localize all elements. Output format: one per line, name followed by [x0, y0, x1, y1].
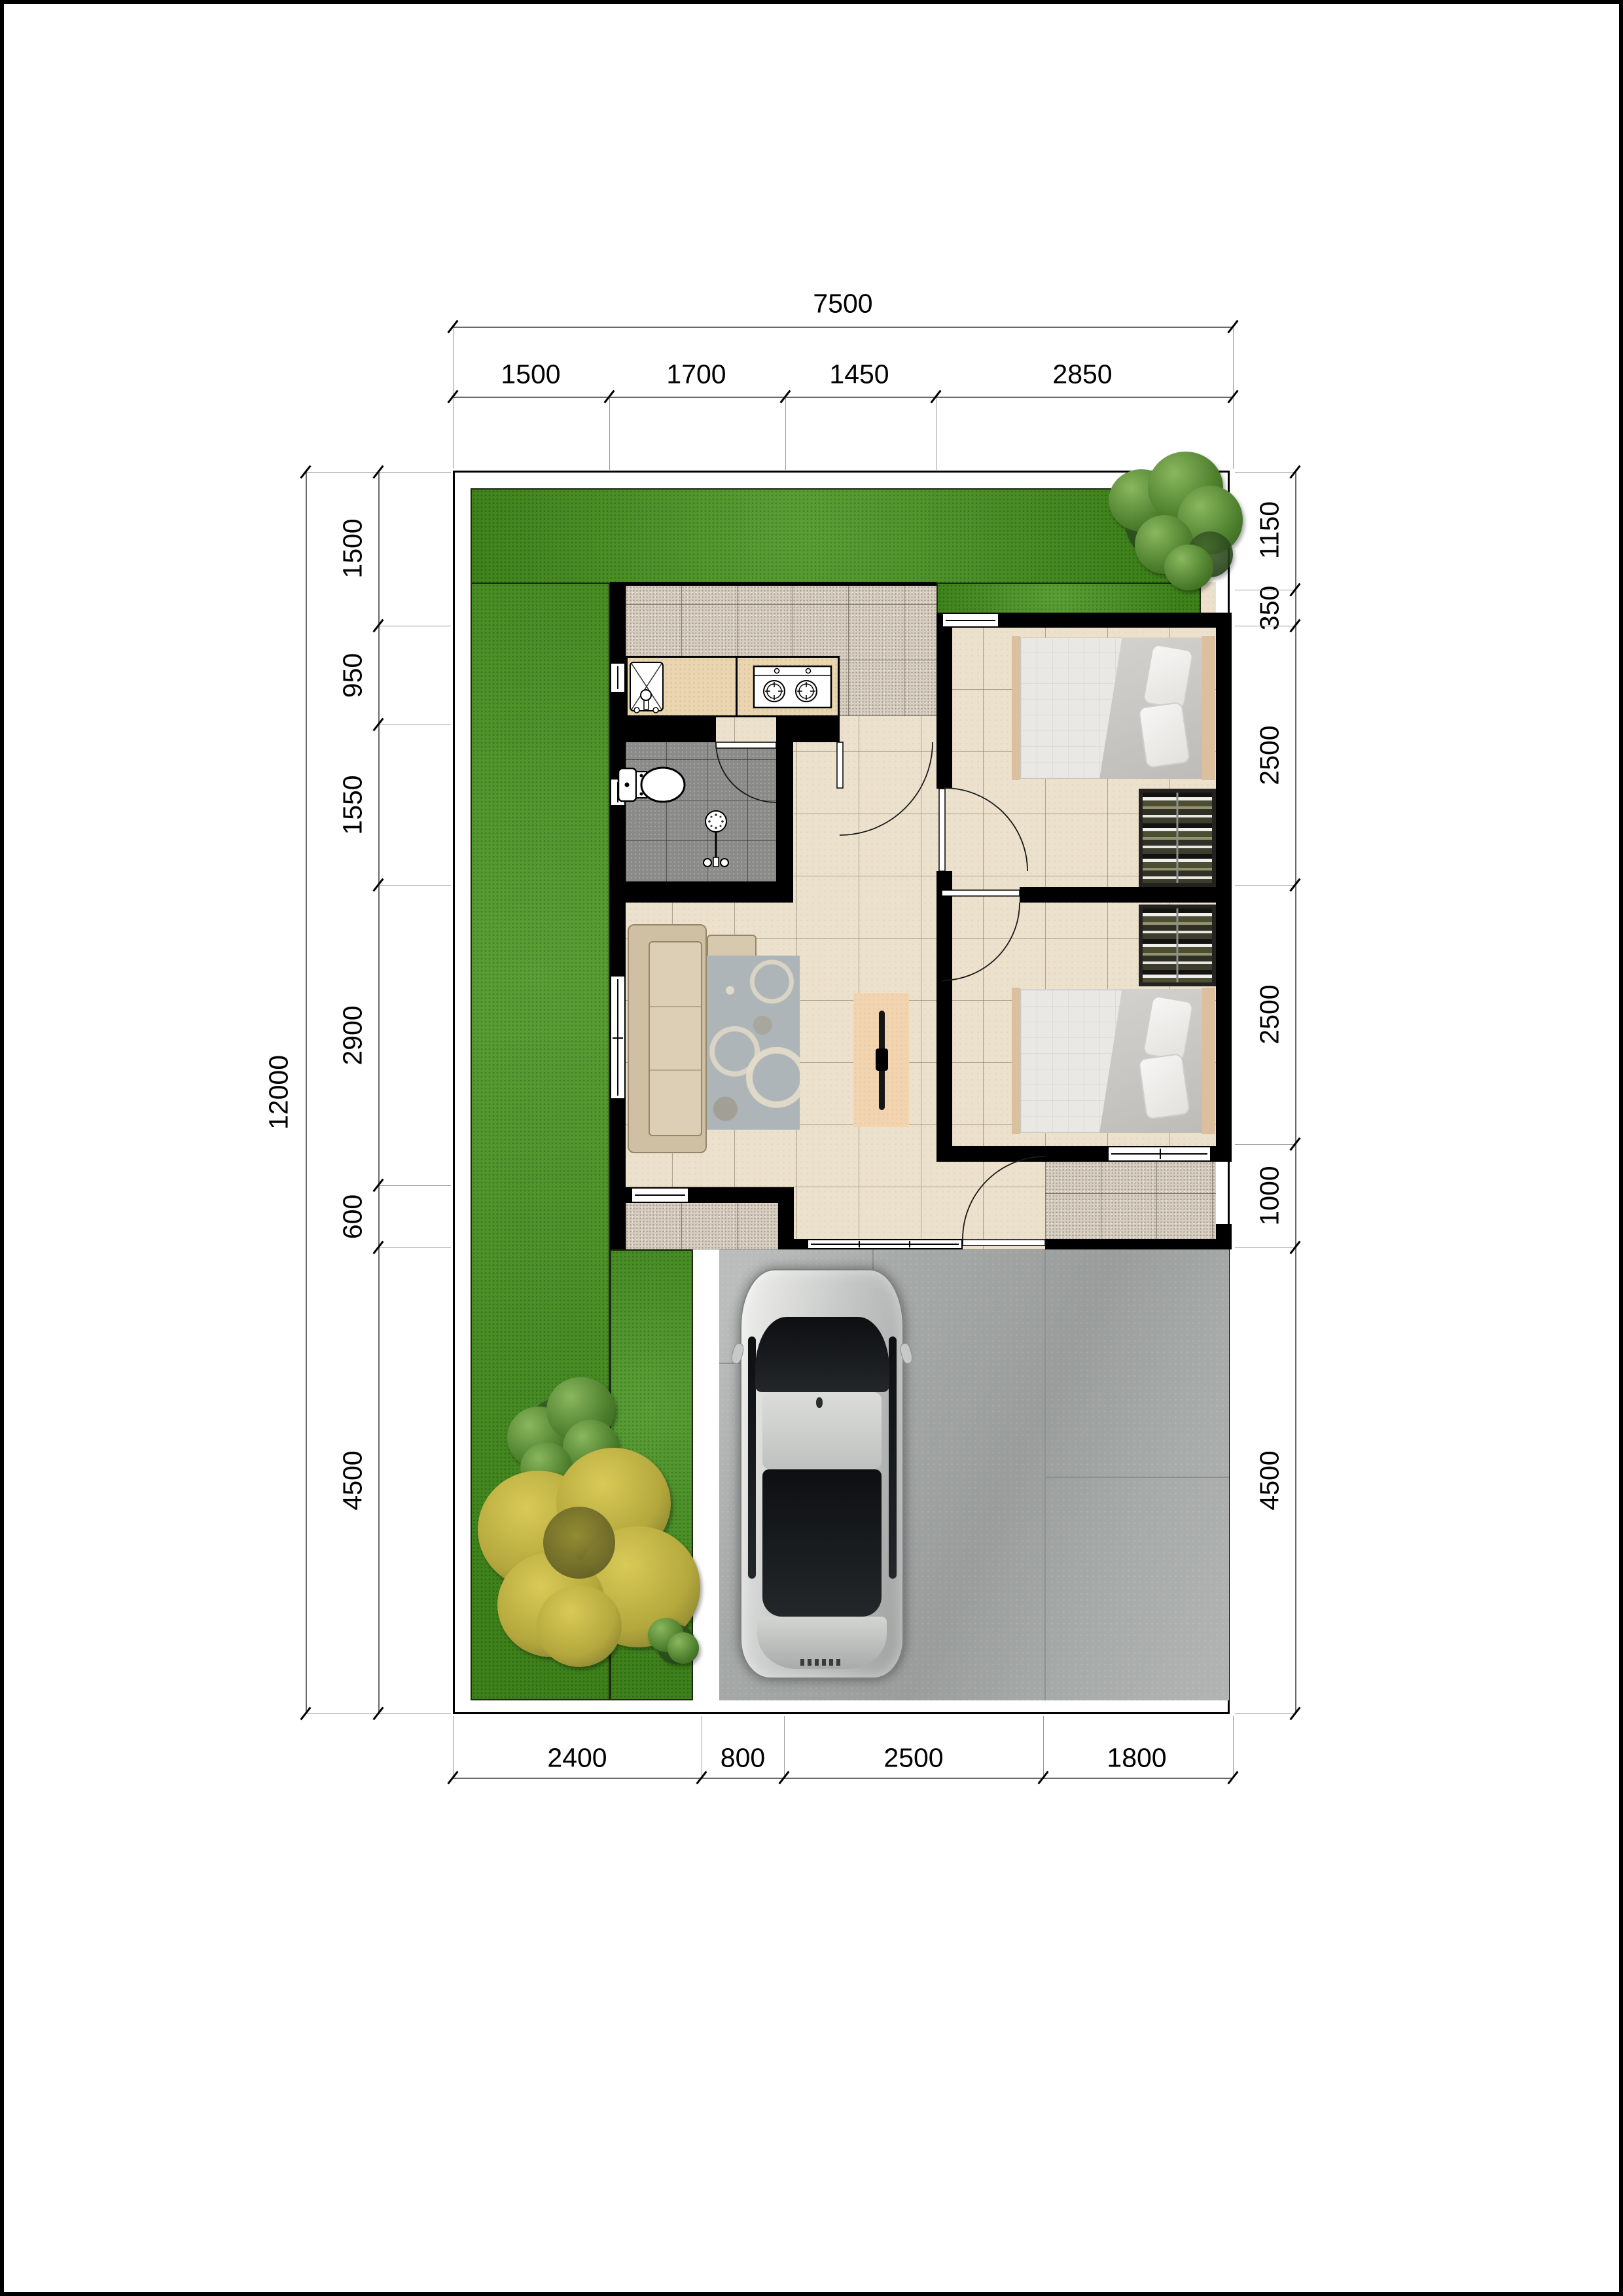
dim-right-seg-6: 4500 — [1255, 1450, 1285, 1510]
dim-ext-top — [609, 397, 610, 470]
dim-line-left-segments — [378, 472, 380, 1713]
dim-ext-left-outer — [306, 472, 378, 473]
bedroom2-door-arc — [942, 903, 1020, 980]
dim-ext-right — [1235, 885, 1295, 886]
dim-left-seg-3: 1550 — [338, 775, 368, 834]
dim-bottom-seg-4: 1800 — [1107, 1743, 1166, 1774]
kitchen-door-arc — [840, 742, 933, 835]
kitchen-door-leaf — [837, 742, 843, 788]
dim-ext-right — [1235, 1247, 1295, 1248]
car — [738, 1266, 906, 1681]
bedroom2-door-leaf — [942, 890, 1020, 896]
dim-left-seg-4: 2900 — [338, 1005, 368, 1065]
car-rear-grille — [800, 1659, 844, 1666]
car-badge — [816, 1397, 823, 1408]
dim-line-top-total — [453, 327, 1233, 328]
dim-ext-left — [378, 725, 451, 725]
floor-plan-sheet: 7500 1500 1700 1450 2850 2400 800 2500 1… — [0, 0, 1623, 2296]
dim-bottom-seg-2: 800 — [721, 1743, 765, 1774]
dim-right-seg-1: 1150 — [1255, 501, 1285, 559]
entrance-door-leaf — [963, 1240, 1045, 1246]
dim-bottom-seg-3: 2500 — [883, 1743, 943, 1774]
car-rear-window — [762, 1469, 882, 1617]
dim-ext-bottom — [453, 1716, 454, 1778]
toilet-icon — [618, 768, 685, 802]
dim-ext-right — [1235, 1144, 1295, 1145]
plot-boundary — [453, 471, 1230, 1714]
dim-top-total: 7500 — [813, 289, 872, 319]
dim-ext-left — [378, 626, 451, 626]
dim-ext-top — [936, 397, 936, 470]
tree-backyard — [1105, 446, 1249, 590]
dim-top-seg-4: 2850 — [1052, 359, 1112, 390]
dim-ext-bottom — [784, 1716, 785, 1778]
dim-left-total: 12000 — [264, 1055, 294, 1130]
dim-top-seg-3: 1450 — [829, 359, 889, 390]
dim-ext-left-outer — [306, 1713, 378, 1714]
dim-ext-bottom — [1043, 1716, 1044, 1778]
entrance-door-arc — [963, 1157, 1045, 1239]
dim-line-top-segments — [453, 397, 1233, 398]
dim-ext-right — [1235, 1713, 1295, 1714]
dim-top-seg-1: 1500 — [501, 359, 560, 390]
dim-line-right — [1295, 472, 1296, 1713]
car-windshield — [755, 1317, 889, 1392]
bathroom-door-arc — [716, 742, 776, 802]
dim-right-seg-4: 2500 — [1255, 984, 1285, 1044]
dim-left-seg-1: 1500 — [338, 518, 368, 578]
stove-icon — [754, 666, 831, 708]
shower-icon — [704, 811, 728, 867]
dim-right-seg-3: 2500 — [1255, 725, 1285, 785]
dim-right-seg-5: 1000 — [1255, 1166, 1285, 1225]
dim-ext-top — [785, 397, 786, 470]
dim-ext-left — [378, 1185, 451, 1186]
tree-front-small — [645, 1613, 704, 1672]
car-side-window-right — [889, 1336, 897, 1579]
dim-left-seg-6: 4500 — [338, 1450, 368, 1510]
dim-bottom-seg-1: 2400 — [547, 1743, 607, 1774]
dim-ext-right — [1235, 626, 1295, 626]
dim-left-seg-5: 600 — [338, 1194, 368, 1239]
bedroom1-door-arc — [944, 788, 1027, 871]
bedroom1-door-leaf — [939, 789, 945, 871]
dim-line-bottom — [453, 1778, 1233, 1779]
dim-line-left-total — [306, 472, 307, 1713]
dim-ext-left — [378, 472, 451, 473]
sink-detail-icon — [632, 664, 662, 713]
dim-left-seg-2: 950 — [338, 653, 368, 698]
dim-top-seg-2: 1700 — [666, 359, 726, 390]
dim-right-seg-2: 350 — [1255, 586, 1285, 630]
dim-ext-left — [378, 1713, 451, 1714]
dim-ext-bottom — [702, 1716, 702, 1778]
dim-ext-left — [378, 1247, 451, 1248]
dim-ext-bottom — [1233, 1716, 1234, 1778]
bathroom-door-leaf — [716, 742, 776, 748]
dim-ext-left — [378, 885, 451, 886]
